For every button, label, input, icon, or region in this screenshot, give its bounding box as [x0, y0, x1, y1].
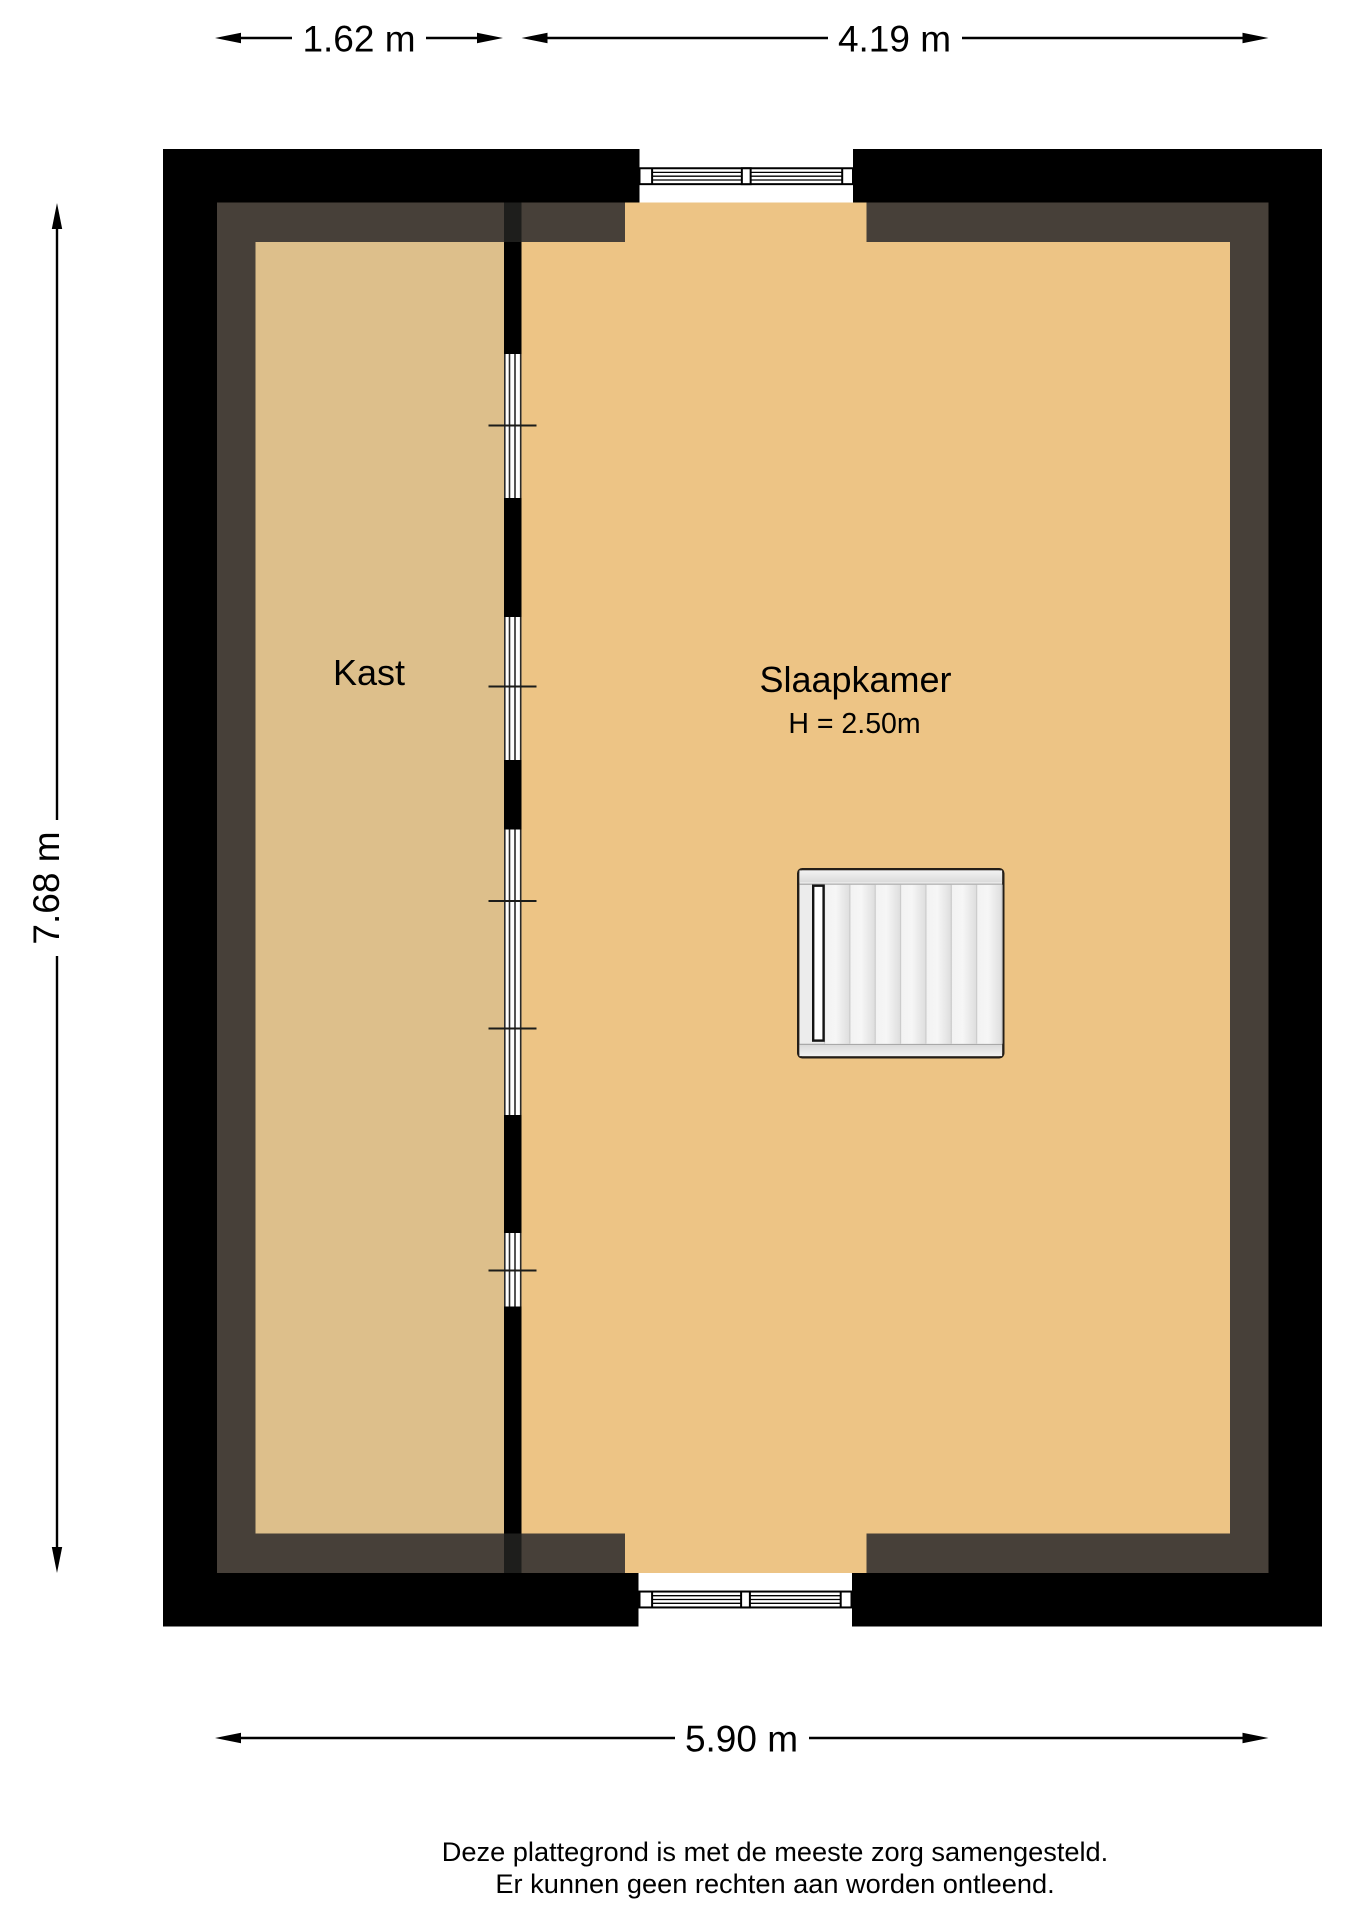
svg-text:4.19 m: 4.19 m — [838, 18, 951, 59]
svg-text:1.62 m: 1.62 m — [302, 18, 415, 59]
svg-text:Slaapkamer: Slaapkamer — [759, 659, 951, 700]
svg-text:H = 2.50m: H = 2.50m — [788, 708, 920, 740]
svg-text:Er kunnen geen rechten aan wor: Er kunnen geen rechten aan worden ontlee… — [495, 1868, 1054, 1899]
svg-text:7.68 m: 7.68 m — [26, 831, 67, 944]
svg-text:Kast: Kast — [333, 652, 405, 693]
svg-text:5.90 m: 5.90 m — [685, 1718, 798, 1759]
svg-text:Deze plattegrond is met de mee: Deze plattegrond is met de meeste zorg s… — [442, 1836, 1108, 1867]
